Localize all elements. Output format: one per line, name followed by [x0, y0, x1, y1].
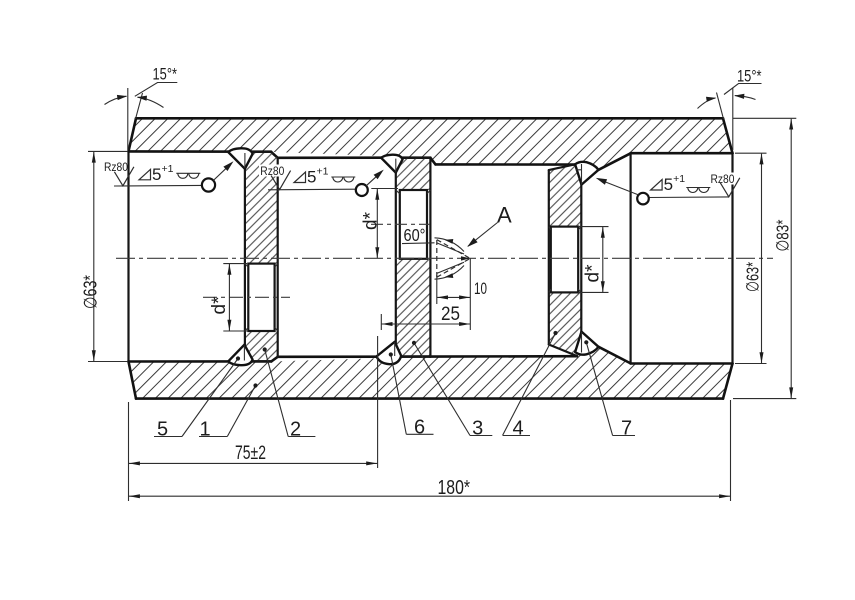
svg-text:1: 1 [199, 419, 210, 441]
svg-text:7: 7 [621, 418, 632, 440]
svg-text:25: 25 [441, 304, 460, 325]
svg-text:+1: +1 [673, 173, 685, 185]
svg-text:∅83*: ∅83* [773, 219, 793, 251]
svg-text:60°: 60° [404, 225, 426, 245]
svg-text:Rz80: Rz80 [711, 174, 735, 186]
svg-text:5: 5 [152, 165, 161, 184]
svg-text:d*: d* [361, 211, 382, 230]
svg-text:3: 3 [472, 418, 483, 440]
svg-text:+1: +1 [317, 166, 329, 178]
svg-text:+1: +1 [162, 163, 174, 175]
svg-text:15°*: 15°* [737, 68, 762, 86]
svg-text:5: 5 [664, 175, 673, 194]
svg-text:6: 6 [414, 416, 425, 438]
svg-text:Rz80: Rz80 [104, 162, 128, 174]
svg-text:5: 5 [307, 168, 316, 187]
svg-text:d*: d* [583, 264, 604, 283]
svg-text:15°*: 15°* [153, 66, 178, 84]
svg-text:d*: d* [209, 296, 230, 315]
svg-text:∅63*: ∅63* [743, 262, 763, 292]
svg-text:10: 10 [474, 280, 487, 298]
svg-text:180*: 180* [438, 477, 471, 499]
svg-text:A: A [497, 203, 512, 228]
svg-text:Rz80: Rz80 [260, 166, 284, 178]
svg-text:2: 2 [290, 419, 301, 441]
svg-text:∅63*: ∅63* [81, 275, 101, 309]
svg-text:4: 4 [512, 418, 523, 440]
svg-text:5: 5 [157, 419, 168, 441]
svg-text:75±2: 75±2 [235, 443, 266, 464]
